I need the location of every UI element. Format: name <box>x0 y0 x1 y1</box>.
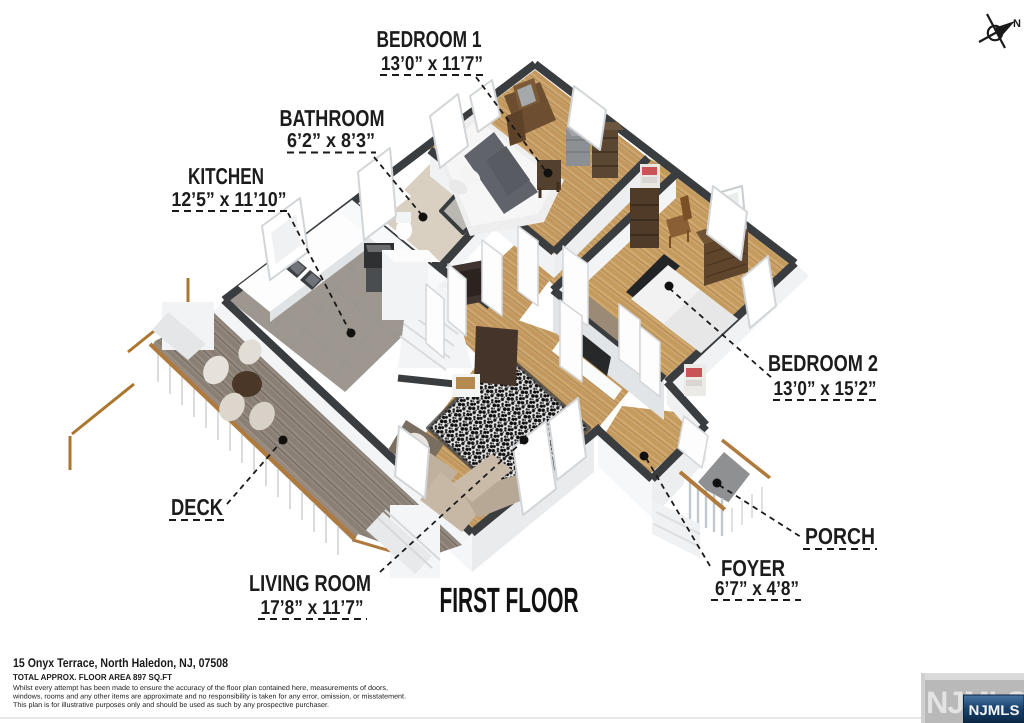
svg-text:KITCHEN: KITCHEN <box>188 163 264 189</box>
svg-text:PORCH: PORCH <box>805 523 875 549</box>
svg-text:13’0” x 15’2”: 13’0” x 15’2” <box>774 378 877 400</box>
svg-text:13’0” x 11’7”: 13’0” x 11’7” <box>381 53 483 75</box>
svg-text:BATHROOM: BATHROOM <box>280 105 385 131</box>
svg-text:windows, rooms and any other i: windows, rooms and any other items are a… <box>12 692 406 700</box>
svg-text:FIRST FLOOR: FIRST FLOOR <box>440 581 579 620</box>
svg-text:NJMLS: NJMLS <box>969 702 1020 718</box>
svg-text:This plan is for illustrative: This plan is for illustrative purposes o… <box>13 701 329 709</box>
svg-text:6’7” x 4’8”: 6’7” x 4’8” <box>715 578 799 600</box>
svg-text:BEDROOM 1: BEDROOM 1 <box>377 26 482 52</box>
svg-text:DECK: DECK <box>171 494 223 520</box>
svg-text:BEDROOM 2: BEDROOM 2 <box>768 350 878 376</box>
svg-text:LIVING ROOM: LIVING ROOM <box>249 570 371 596</box>
svg-text:Whilst every attempt has been: Whilst every attempt has been made to en… <box>13 684 388 692</box>
svg-text:17’8” x 11’7”: 17’8” x 11’7” <box>261 597 364 619</box>
svg-text:N: N <box>1013 18 1021 30</box>
svg-text:12’5” x 11’10”: 12’5” x 11’10” <box>172 189 287 211</box>
svg-text:TOTAL APPROX. FLOOR AREA 897 S: TOTAL APPROX. FLOOR AREA 897 SQ.FT <box>13 672 173 682</box>
svg-text:15 Onyx Terrace, North Haledon: 15 Onyx Terrace, North Haledon, NJ, 0750… <box>13 656 228 670</box>
svg-text:6’2” x 8’3”: 6’2” x 8’3” <box>287 130 375 152</box>
